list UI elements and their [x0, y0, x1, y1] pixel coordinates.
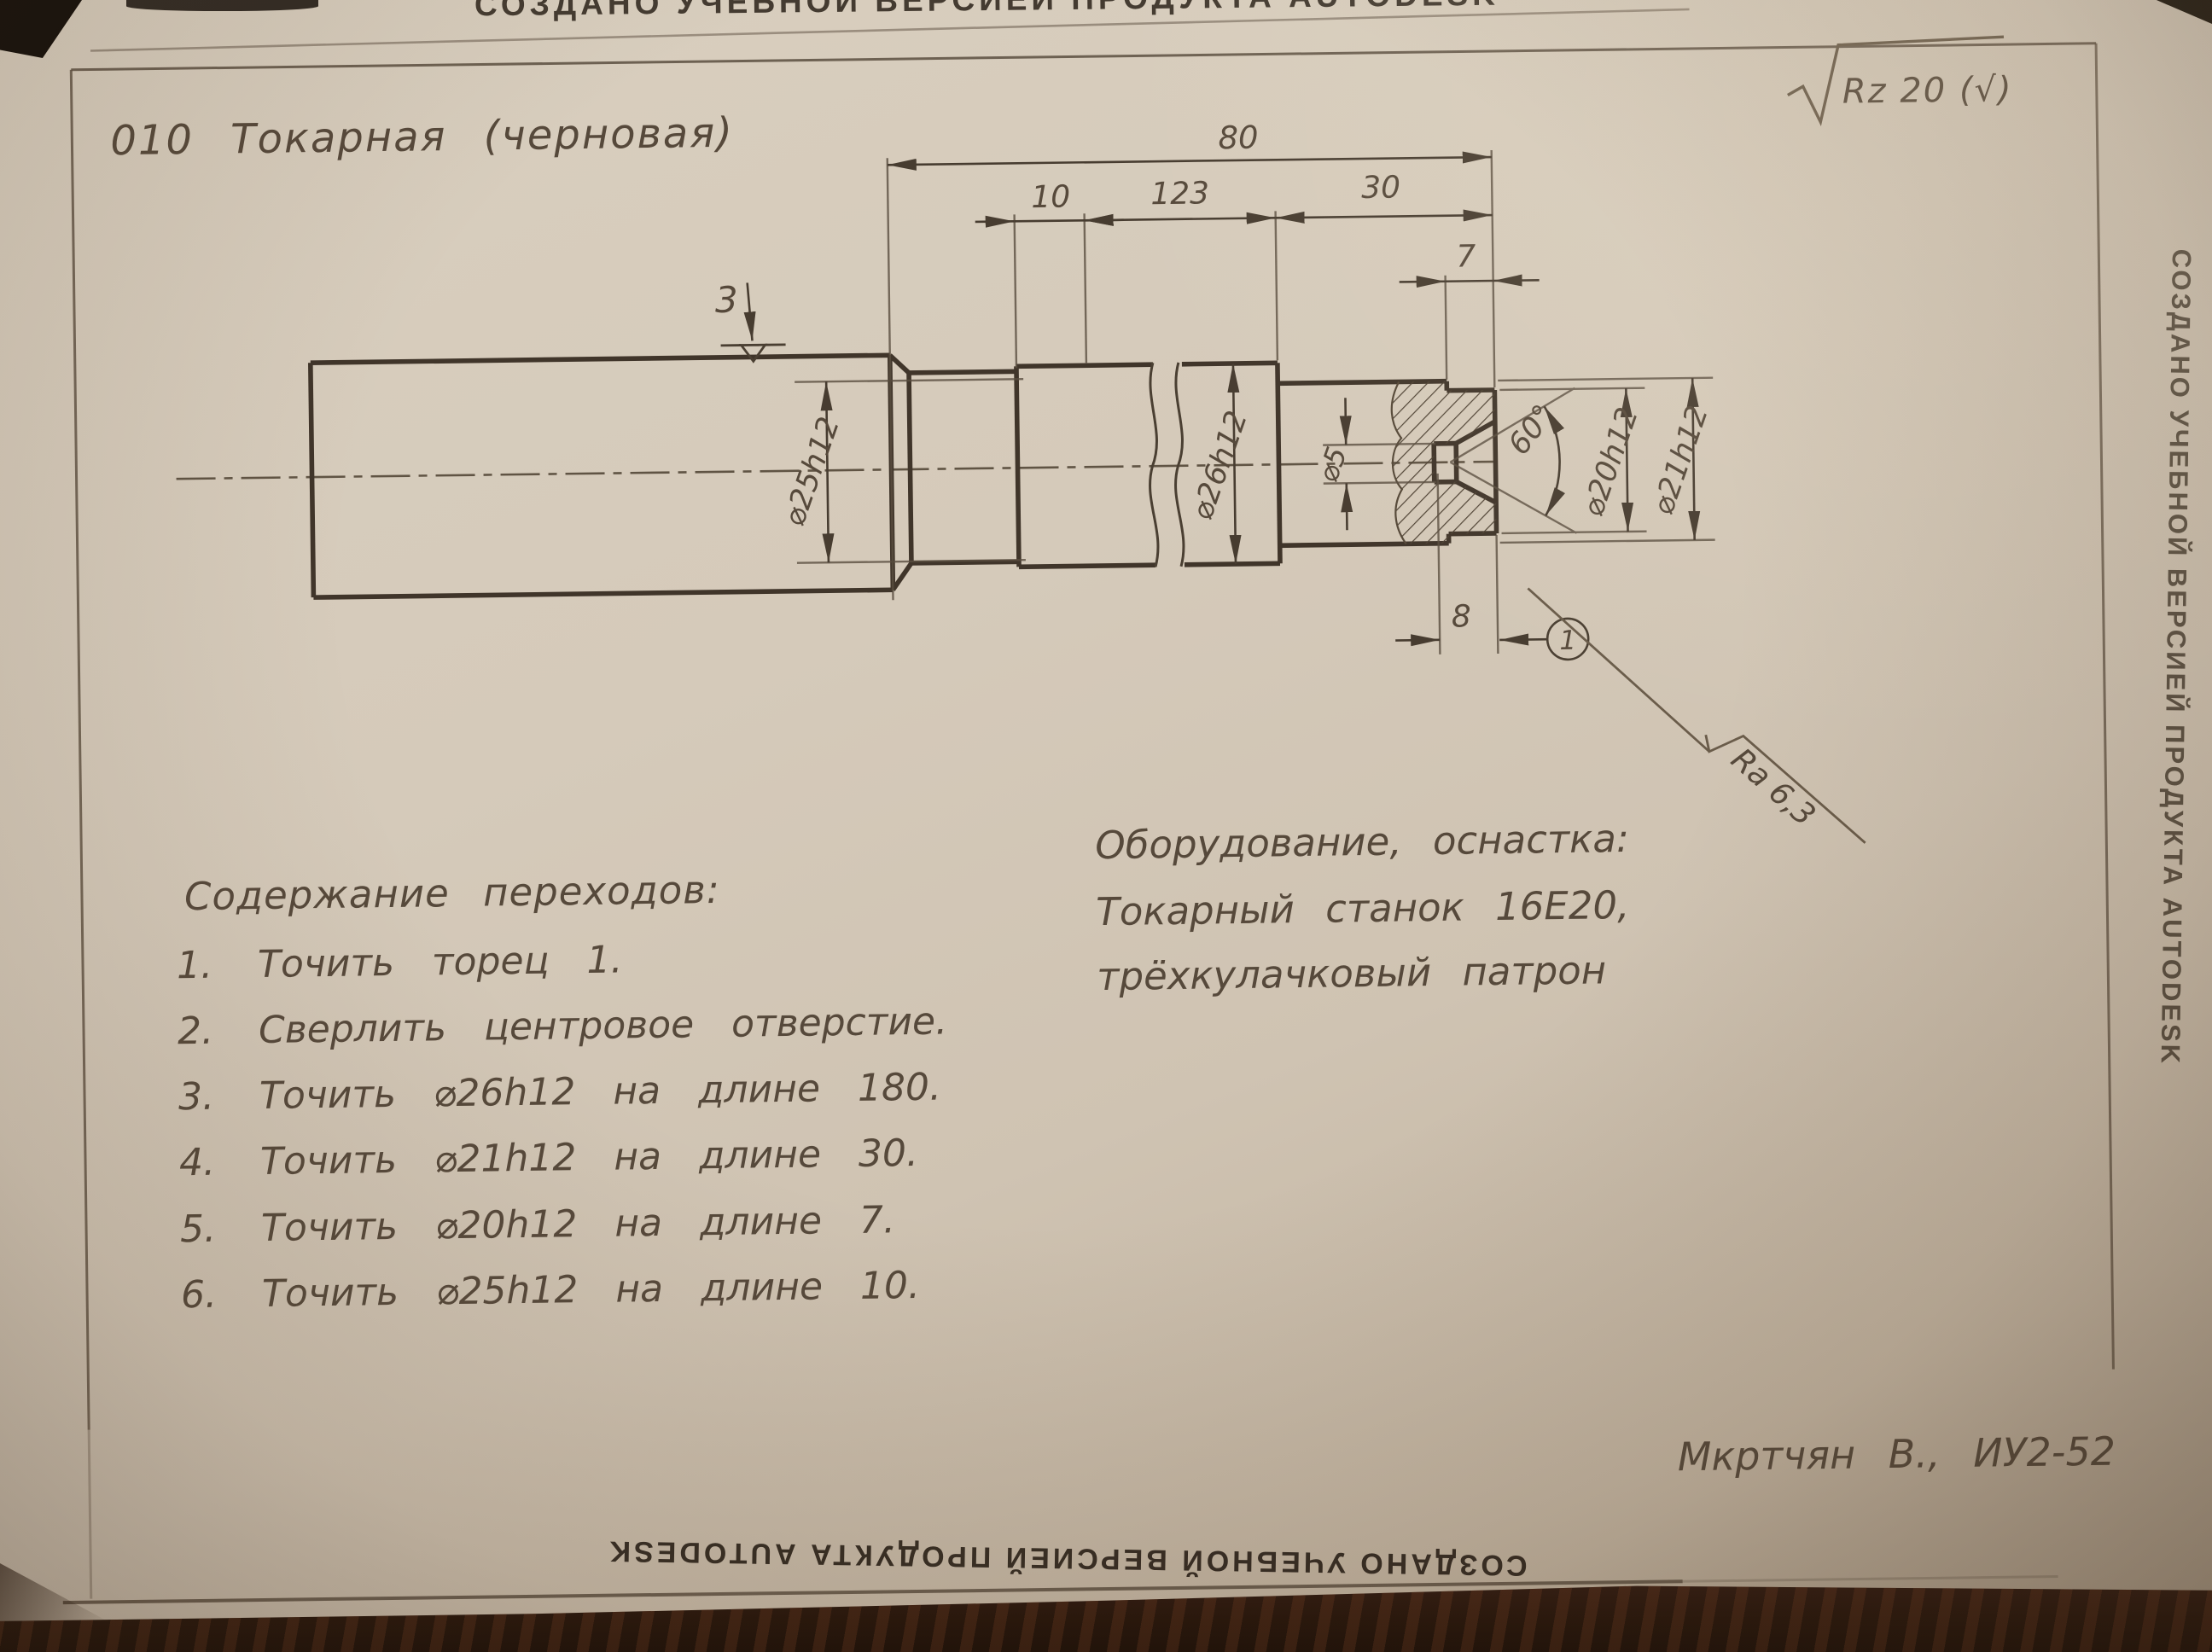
transition-text: Точить ⌀21h12 на длине 30.: [260, 1131, 919, 1184]
general-roughness-value: Rz 20 (√): [1842, 70, 2013, 112]
dim-len-30: 30: [1361, 170, 1400, 206]
extension-lines: [792, 148, 1717, 663]
shaft-drawing: 80 10 123 30 7 8 ⌀25h12 ⌀26h12 ⌀5 60° ⌀2…: [172, 111, 1866, 892]
centerline: [177, 462, 1494, 479]
operation-title: 010 Токарная (черновая): [110, 109, 734, 166]
transitions-block: Содержание переходов: 1. Точить торец 1.…: [176, 864, 952, 1317]
surface-3-mark: 3: [715, 278, 786, 362]
photo-edge-shadow: [126, 0, 318, 11]
equipment-line: Токарный станок 16Е20,: [1096, 882, 1630, 934]
equipment-heading: Оборудование, оснастка:: [1095, 816, 1629, 868]
dim-len-10: 10: [1031, 179, 1070, 215]
equipment-block: Оборудование, оснастка: Токарный станок …: [1095, 816, 1631, 999]
transition-num: 5.: [180, 1207, 217, 1252]
transition-text: Сверлить центровое отверстие.: [259, 999, 948, 1052]
dimension-lines: [824, 154, 1696, 649]
operation-card-sheet: 010 Токарная (черновая) Rz 20 (√): [0, 0, 2212, 1652]
break-lines: [1149, 363, 1185, 567]
surface-3-number: 3: [715, 279, 738, 321]
transition-num: 6.: [181, 1273, 218, 1318]
transition-num: 3.: [178, 1075, 215, 1120]
dim-overall: 80: [1218, 119, 1259, 157]
dim-len-123: 123: [1150, 176, 1209, 212]
transitions-heading: Содержание переходов:: [184, 867, 721, 919]
signature: Мкртчян В., ИУ2-52: [1677, 1428, 2116, 1480]
transition-num: 4.: [179, 1141, 216, 1185]
transition-num: 2.: [178, 1009, 214, 1054]
end-roughness-value: Ra 6,3: [1724, 742, 1821, 833]
dia-20-label: ⌀20h12: [1576, 404, 1645, 521]
transition-text: Точить ⌀26h12 на длине 180.: [259, 1066, 942, 1118]
equipment-line: трёхкулачковый патрон: [1097, 947, 1607, 999]
transition-text: Точить торец 1.: [258, 938, 623, 986]
transition-text: Точить ⌀25h12 на длине 10.: [262, 1264, 921, 1316]
transition-text: Точить ⌀20h12 на длине 7.: [261, 1198, 896, 1250]
dia-5-label: ⌀5: [1311, 443, 1353, 486]
transition-num: 1.: [177, 944, 213, 988]
photographed-operation-card: СОЗДАНО УЧЕБНОЙ ВЕРСИЕЙ ПРОДУКТА AUTODES…: [0, 0, 2212, 1652]
dia-21-label: ⌀21h12: [1646, 401, 1715, 519]
angle-60-label: 60°: [1502, 398, 1561, 462]
general-roughness-symbol: Rz 20 (√): [1787, 37, 2013, 122]
dim-len-7: 7: [1456, 239, 1476, 274]
dim-hole-depth: 8: [1452, 599, 1471, 634]
